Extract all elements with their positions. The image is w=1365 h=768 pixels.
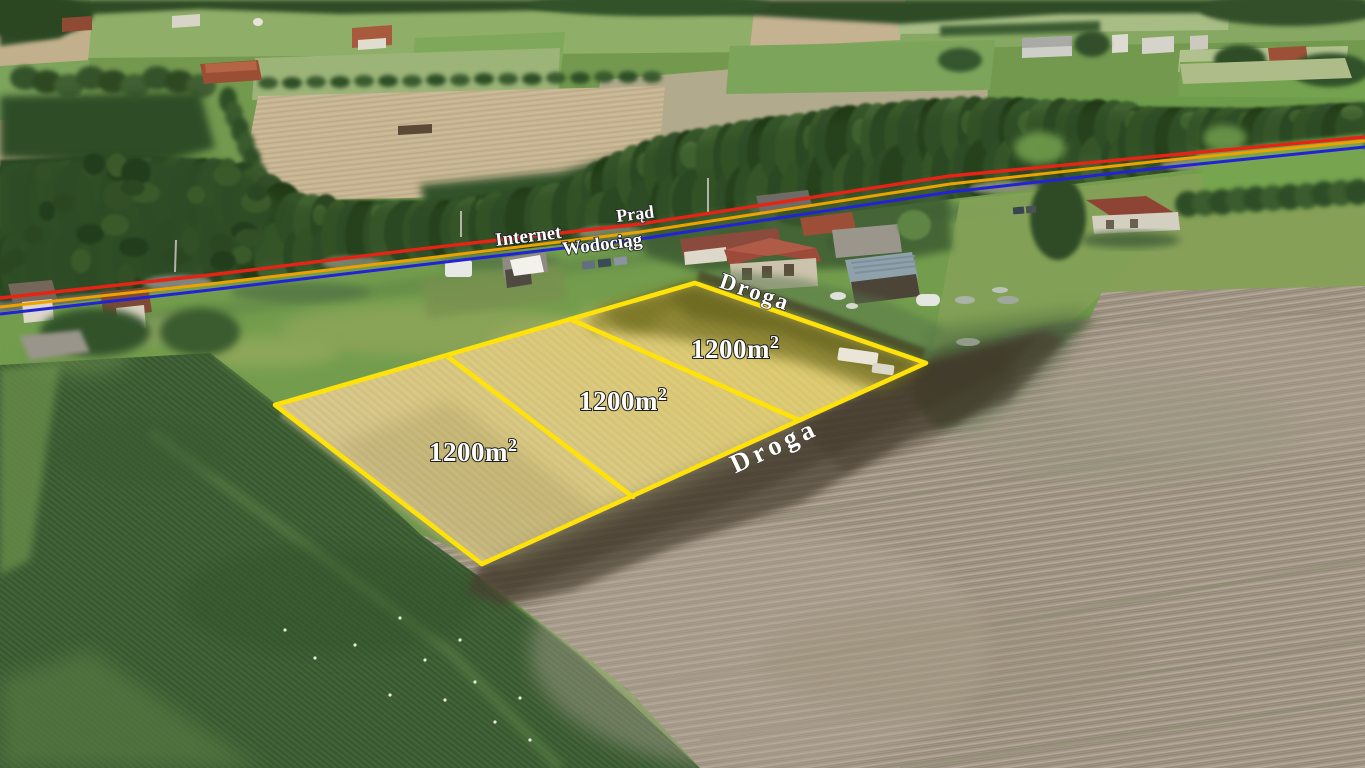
svg-text:1200m2: 1200m2 [579,384,668,416]
svg-text:1200m2: 1200m2 [691,332,780,364]
svg-text:1200m2: 1200m2 [429,435,518,467]
